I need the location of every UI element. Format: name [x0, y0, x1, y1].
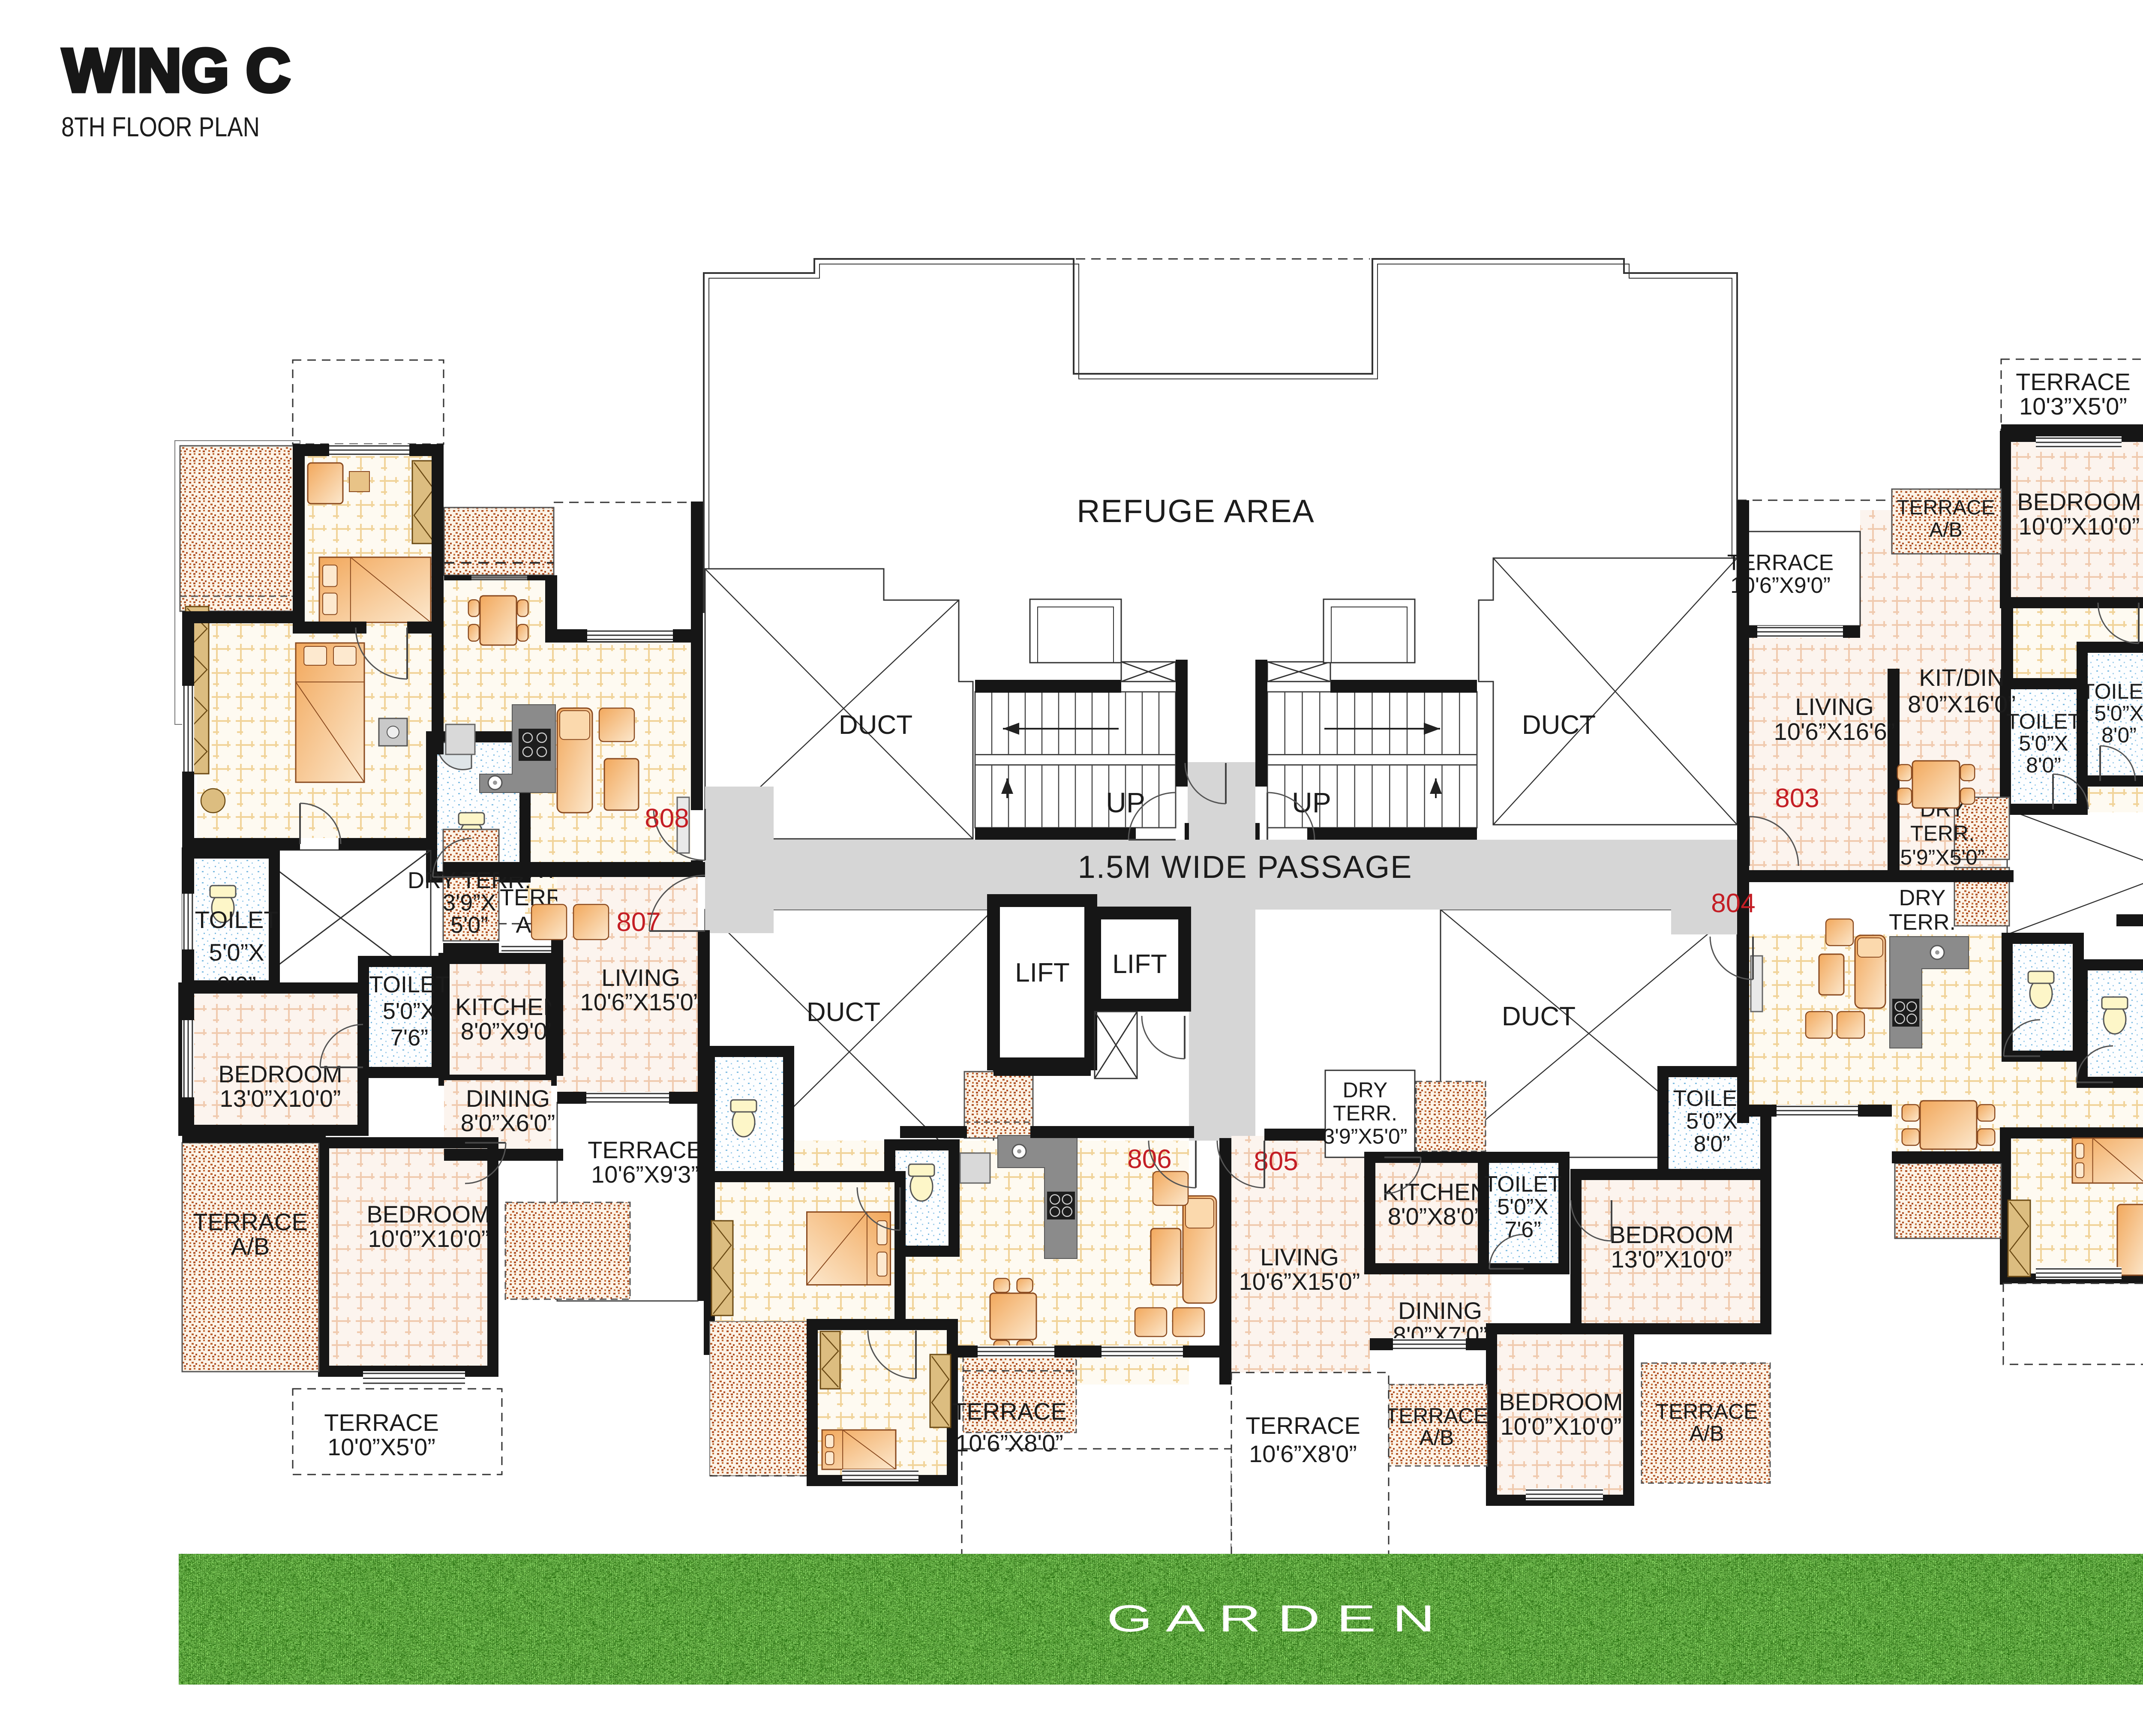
svg-text:TOILET: TOILET	[195, 906, 278, 933]
svg-text:13'0”X10'0”: 13'0”X10'0”	[220, 1085, 341, 1112]
svg-text:807: 807	[616, 907, 660, 937]
svg-text:808: 808	[645, 804, 689, 833]
svg-text:5'0”X: 5'0”X	[2094, 701, 2143, 725]
svg-text:8'0”X16'0”: 8'0”X16'0”	[1908, 691, 2016, 718]
svg-text:3'9”X5'0”: 3'9”X5'0”	[1323, 1124, 1408, 1148]
svg-text:10'6”X8'0”: 10'6”X8'0”	[1249, 1440, 1357, 1467]
svg-text:TERR.: TERR.	[1910, 821, 1975, 845]
svg-text:7'6”: 7'6”	[1504, 1217, 1541, 1242]
svg-text:10'6”X8'0”: 10'6”X8'0”	[955, 1430, 1063, 1457]
svg-text:1.5M WIDE PASSAGE: 1.5M WIDE PASSAGE	[1078, 849, 1412, 885]
svg-text:5'0”X: 5'0”X	[1497, 1195, 1549, 1219]
svg-text:10'6”X15'0”: 10'6”X15'0”	[580, 988, 702, 1015]
svg-text:8'0”: 8'0”	[2026, 753, 2061, 777]
svg-text:WING C: WING C	[63, 36, 290, 105]
svg-text:A/B: A/B	[1420, 1426, 1454, 1450]
svg-text:TERRACE: TERRACE	[1386, 1404, 1488, 1428]
svg-text:KITCHEN: KITCHEN	[1382, 1178, 1488, 1205]
svg-text:DUCT: DUCT	[1522, 710, 1596, 740]
svg-text:13'0”X10'0”: 13'0”X10'0”	[1611, 1246, 1732, 1273]
svg-text:TOILET: TOILET	[369, 972, 450, 997]
svg-text:TERRACE: TERRACE	[1246, 1412, 1360, 1439]
svg-text:8'0”: 8'0”	[1693, 1132, 1730, 1156]
svg-text:TERR.: TERR.	[1333, 1101, 1397, 1125]
svg-text:TERRACE: TERRACE	[193, 1208, 308, 1235]
svg-text:TERRACE: TERRACE	[324, 1409, 439, 1436]
svg-text:A/B: A/B	[1929, 519, 1962, 541]
svg-text:TOILET: TOILET	[2082, 679, 2143, 703]
svg-text:LIVING: LIVING	[1795, 693, 1874, 720]
svg-text:5'0”X: 5'0”X	[209, 939, 264, 966]
svg-text:10'0”X10'0”: 10'0”X10'0”	[2019, 513, 2140, 540]
svg-text:KITCHEN: KITCHEN	[455, 993, 561, 1020]
svg-text:BEDROOM: BEDROOM	[1499, 1388, 1623, 1415]
svg-text:10'3”X5'0”: 10'3”X5'0”	[2019, 393, 2127, 420]
svg-text:7'6”: 7'6”	[390, 1025, 428, 1051]
svg-text:UP: UP	[1106, 787, 1145, 818]
svg-text:LIFT: LIFT	[1112, 949, 1167, 979]
svg-text:DRY: DRY	[1899, 886, 1946, 910]
svg-text:REFUGE AREA: REFUGE AREA	[1077, 493, 1315, 529]
svg-text:8TH FLOOR PLAN: 8TH FLOOR PLAN	[61, 111, 260, 142]
svg-text:TOILET: TOILET	[2006, 709, 2081, 733]
svg-text:805: 805	[1254, 1147, 1298, 1176]
svg-text:BEDROOM: BEDROOM	[366, 1201, 490, 1228]
svg-text:LIVING: LIVING	[601, 964, 680, 991]
svg-text:LIVING: LIVING	[1260, 1243, 1339, 1270]
svg-text:TERR.: TERR.	[1889, 910, 1956, 935]
svg-text:BEDROOM: BEDROOM	[218, 1060, 342, 1087]
svg-text:8'0”X9'0”: 8'0”X9'0”	[461, 1018, 555, 1045]
svg-text:DUCT: DUCT	[839, 710, 912, 740]
svg-text:A/B: A/B	[1690, 1421, 1724, 1445]
svg-text:DINING: DINING	[466, 1085, 550, 1112]
svg-text:10'6”X15'0”: 10'6”X15'0”	[1239, 1268, 1360, 1295]
svg-text:5'0”X: 5'0”X	[2019, 731, 2068, 755]
svg-text:UP: UP	[1292, 787, 1331, 818]
svg-text:DUCT: DUCT	[807, 997, 880, 1027]
svg-text:5'0”: 5'0”	[450, 912, 488, 938]
svg-text:5'0”X: 5'0”X	[383, 998, 436, 1024]
svg-text:5'0”X: 5'0”X	[1686, 1109, 1738, 1134]
svg-text:DINING: DINING	[1398, 1297, 1482, 1324]
svg-text:8'0”: 8'0”	[2101, 723, 2137, 747]
svg-text:TERRACE: TERRACE	[2016, 368, 2131, 395]
svg-text:TOILET: TOILET	[1484, 1172, 1561, 1197]
svg-text:TERRACE: TERRACE	[1897, 496, 1995, 519]
svg-text:TERRACE: TERRACE	[952, 1398, 1067, 1425]
svg-text:8'0”X8'0”: 8'0”X8'0”	[1388, 1203, 1483, 1230]
svg-text:G A R D E N: G A R D E N	[1107, 1597, 1435, 1640]
svg-text:TERRACE: TERRACE	[588, 1136, 702, 1163]
svg-text:BEDROOM: BEDROOM	[2017, 488, 2141, 515]
svg-text:10'0”X10'0”: 10'0”X10'0”	[368, 1225, 489, 1252]
svg-text:3'9”X: 3'9”X	[443, 890, 496, 916]
svg-text:KIT/DIN: KIT/DIN	[1919, 664, 2004, 691]
svg-text:A/B: A/B	[231, 1233, 270, 1260]
svg-text:5'9”X5'0”: 5'9”X5'0”	[1900, 845, 1985, 869]
svg-text:10'0”X10'0”: 10'0”X10'0”	[1501, 1413, 1622, 1440]
svg-text:DRY: DRY	[1343, 1078, 1388, 1102]
svg-text:LIFT: LIFT	[1015, 958, 1069, 988]
svg-text:10'6”X16'6”: 10'6”X16'6”	[1774, 718, 1895, 745]
svg-text:8'0”X6'0”: 8'0”X6'0”	[461, 1109, 555, 1136]
svg-text:TERRACE: TERRACE	[1656, 1400, 1758, 1424]
svg-text:804: 804	[1711, 889, 1755, 918]
svg-text:DUCT: DUCT	[1502, 1002, 1576, 1031]
svg-text:BEDROOM: BEDROOM	[1609, 1221, 1733, 1248]
svg-text:10'6”X9'3”: 10'6”X9'3”	[591, 1161, 699, 1188]
svg-text:803: 803	[1775, 784, 1819, 813]
svg-text:10'0”X5'0”: 10'0”X5'0”	[327, 1433, 435, 1460]
